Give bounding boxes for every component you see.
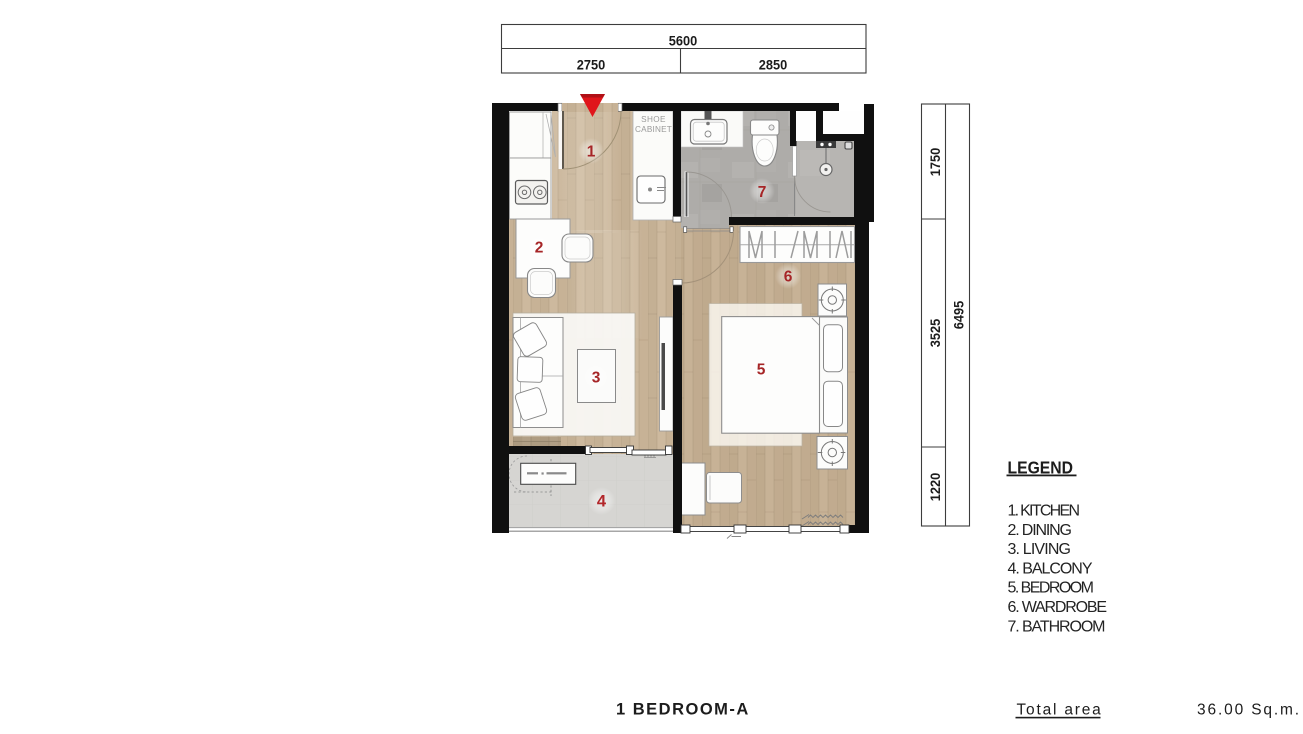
svg-text:5. BEDROOM: 5. BEDROOM [1008,580,1095,597]
svg-text:7: 7 [758,184,767,201]
svg-text:36.00 Sq.m.: 36.00 Sq.m. [1197,702,1301,719]
svg-text:7. BATHROOM: 7. BATHROOM [1008,618,1106,635]
svg-text:2750: 2750 [577,57,606,73]
svg-text:3: 3 [592,370,601,387]
svg-text:1 BEDROOM-A: 1 BEDROOM-A [616,701,750,719]
svg-text:3. LIVING: 3. LIVING [1008,541,1072,558]
svg-text:CABINET: CABINET [635,125,672,134]
svg-text:1750: 1750 [927,148,943,177]
svg-text:SHOE: SHOE [641,115,666,124]
svg-text:5600: 5600 [669,33,698,49]
svg-text:2850: 2850 [759,57,788,73]
svg-text:2. DINING: 2. DINING [1008,522,1073,539]
svg-text:6: 6 [784,269,793,286]
svg-text:5: 5 [757,362,766,379]
svg-text:1220: 1220 [927,473,943,502]
svg-text:3525: 3525 [927,319,943,348]
svg-text:Total area: Total area [1017,702,1103,719]
svg-text:4. BALCONY: 4. BALCONY [1008,560,1093,577]
svg-text:1: 1 [587,144,596,161]
svg-text:6495: 6495 [951,301,967,330]
svg-text:6. WARDROBE: 6. WARDROBE [1008,599,1108,616]
svg-text:4: 4 [597,493,607,511]
svg-text:2: 2 [535,240,544,257]
svg-text:1. KITCHEN: 1. KITCHEN [1008,503,1081,520]
